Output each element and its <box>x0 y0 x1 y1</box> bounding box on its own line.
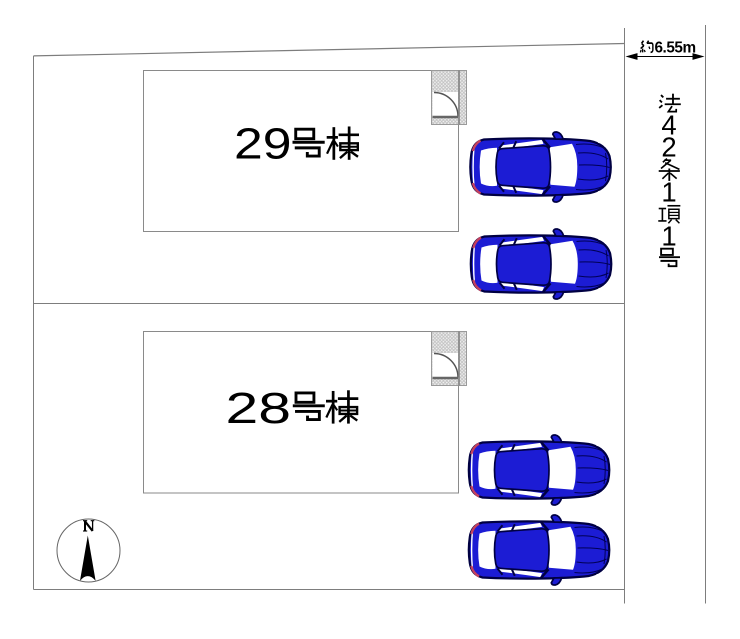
svg-text:29: 29 <box>234 119 292 168</box>
svg-text:1: 1 <box>661 220 676 251</box>
svg-text:1: 1 <box>661 177 676 208</box>
svg-text:28: 28 <box>226 384 292 433</box>
svg-text:6.55m: 6.55m <box>655 40 696 57</box>
svg-text:2: 2 <box>661 131 676 162</box>
